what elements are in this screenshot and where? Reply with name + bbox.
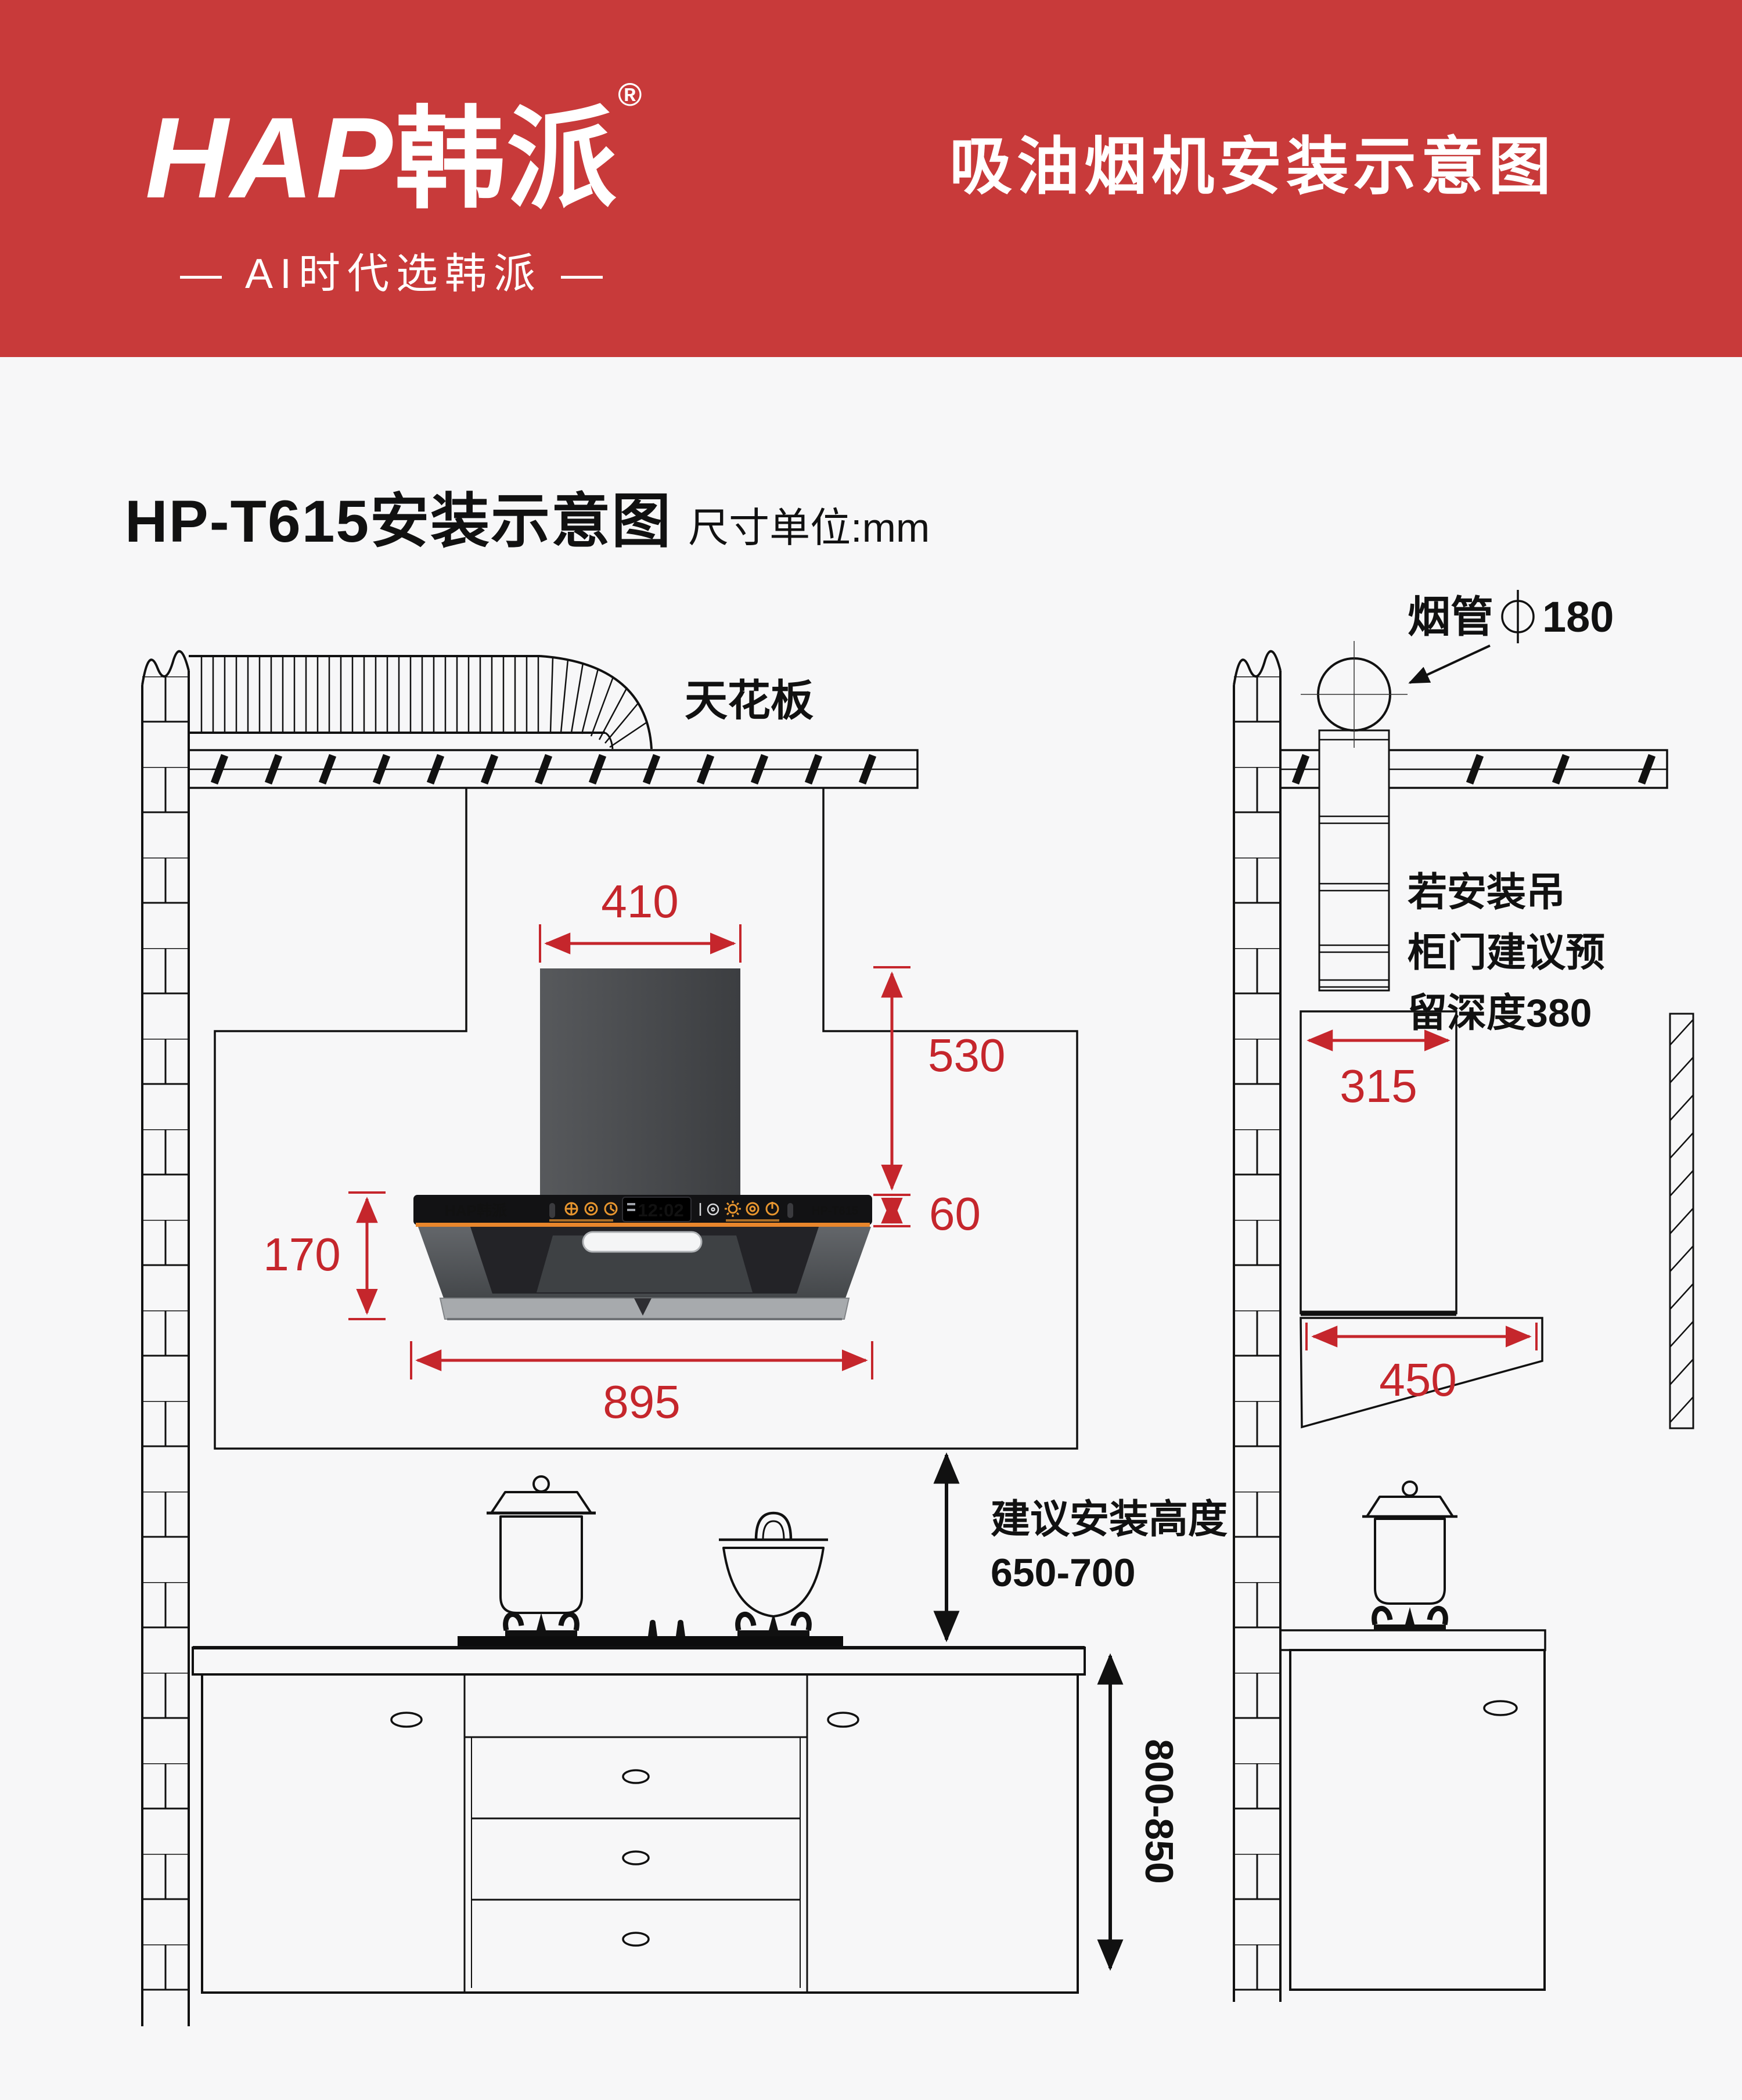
svg-text:若安装吊: 若安装吊 xyxy=(1408,870,1565,914)
dim-chimney-height: 530 xyxy=(873,967,1005,1195)
wall-right xyxy=(1234,651,1280,2002)
door-handle xyxy=(391,1713,422,1727)
icon-caption-marks xyxy=(726,1219,779,1222)
front-view: 天花板 HAP韩派 HP-T615 12:02 xyxy=(142,651,1228,2026)
display-mode-marks xyxy=(627,1203,635,1205)
svg-text:895: 895 xyxy=(603,1376,680,1428)
smoke-pipe xyxy=(1301,641,1408,990)
countertop xyxy=(193,1648,1085,1674)
counter-height-range: 800-850 xyxy=(1137,1739,1181,1884)
dim-hood-width: 895 xyxy=(411,1341,872,1428)
hood-model-label: HP-T615 xyxy=(812,1205,858,1218)
svg-text:170: 170 xyxy=(263,1229,340,1280)
side-view: 烟管 180 若安装吊 柜门建议预 留深度380 315 450 xyxy=(1234,590,1693,2002)
svg-text:60: 60 xyxy=(929,1188,981,1240)
hood-accent-line xyxy=(416,1223,870,1227)
pipe-leader-arrow xyxy=(1410,646,1490,683)
hanging-cabinet-side xyxy=(1301,1011,1456,1313)
sensor-pill-icon xyxy=(787,1203,793,1218)
dim-install-height: 建议安装高度 650-700 xyxy=(946,1455,1228,1640)
wall-left xyxy=(142,651,189,2026)
hob-knob-icon xyxy=(676,1620,685,1636)
wok-pan xyxy=(719,1513,828,1616)
base-cabinet xyxy=(193,1648,1085,1993)
hood-light-bar xyxy=(583,1232,701,1252)
stock-pot xyxy=(487,1476,596,1613)
ai-fan-icon xyxy=(566,1203,577,1215)
hood-brand-label: HAP韩派 xyxy=(445,1202,507,1219)
hob-knob-icon xyxy=(648,1620,657,1636)
pipe-label: 烟管 xyxy=(1408,593,1493,641)
ceiling-duct xyxy=(189,656,652,749)
svg-text:留深度380: 留深度380 xyxy=(1408,991,1592,1035)
drawer-knob xyxy=(623,1852,649,1864)
svg-text:410: 410 xyxy=(601,876,678,927)
drawer-knob xyxy=(623,1933,649,1946)
pipe-diameter: 180 xyxy=(1542,593,1614,641)
dim-hood-height: 170 xyxy=(263,1193,386,1319)
svg-text:450: 450 xyxy=(1379,1354,1456,1406)
display-mode-marks xyxy=(627,1209,635,1211)
drawer-knob xyxy=(623,1770,649,1783)
icon-caption-marks xyxy=(549,1219,613,1222)
stock-pot-side xyxy=(1362,1482,1457,1604)
door-handle xyxy=(1484,1701,1517,1715)
hood-product: HAP韩派 HP-T615 12:02 xyxy=(413,968,872,1319)
sensor-pill-icon xyxy=(549,1203,555,1218)
clock-time: 12:02 xyxy=(638,1200,683,1220)
burner-side-icon xyxy=(1374,1607,1446,1630)
base-cabinet-side xyxy=(1280,1630,1545,1990)
diameter-symbol-icon xyxy=(1502,590,1534,643)
svg-text:530: 530 xyxy=(928,1029,1005,1081)
hood-chimney xyxy=(540,968,740,1196)
burner-left-icon xyxy=(505,1613,577,1636)
countertop-side xyxy=(1280,1630,1545,1650)
install-height-label: 建议安装高度 xyxy=(991,1497,1228,1541)
cooktop xyxy=(458,1476,843,1648)
svg-text:柜门建议预: 柜门建议预 xyxy=(1408,931,1605,975)
cabinet-door-strip xyxy=(1670,1014,1693,1428)
door-handle xyxy=(828,1713,858,1727)
pipe-centerlines xyxy=(1301,641,1408,748)
dim-counter-height: 800-850 xyxy=(1110,1656,1181,1968)
install-height-range: 650-700 xyxy=(991,1551,1136,1595)
installation-diagram: 天花板 HAP韩派 HP-T615 12:02 xyxy=(0,0,1742,2100)
dim-cabinet-depth: 315 xyxy=(1309,1040,1448,1112)
ceiling-slab xyxy=(189,750,917,788)
dim-chimney-width: 410 xyxy=(540,876,740,963)
ceiling-label: 天花板 xyxy=(685,676,814,725)
svg-text:315: 315 xyxy=(1340,1060,1417,1112)
pipe-callout: 烟管 180 xyxy=(1408,590,1614,683)
